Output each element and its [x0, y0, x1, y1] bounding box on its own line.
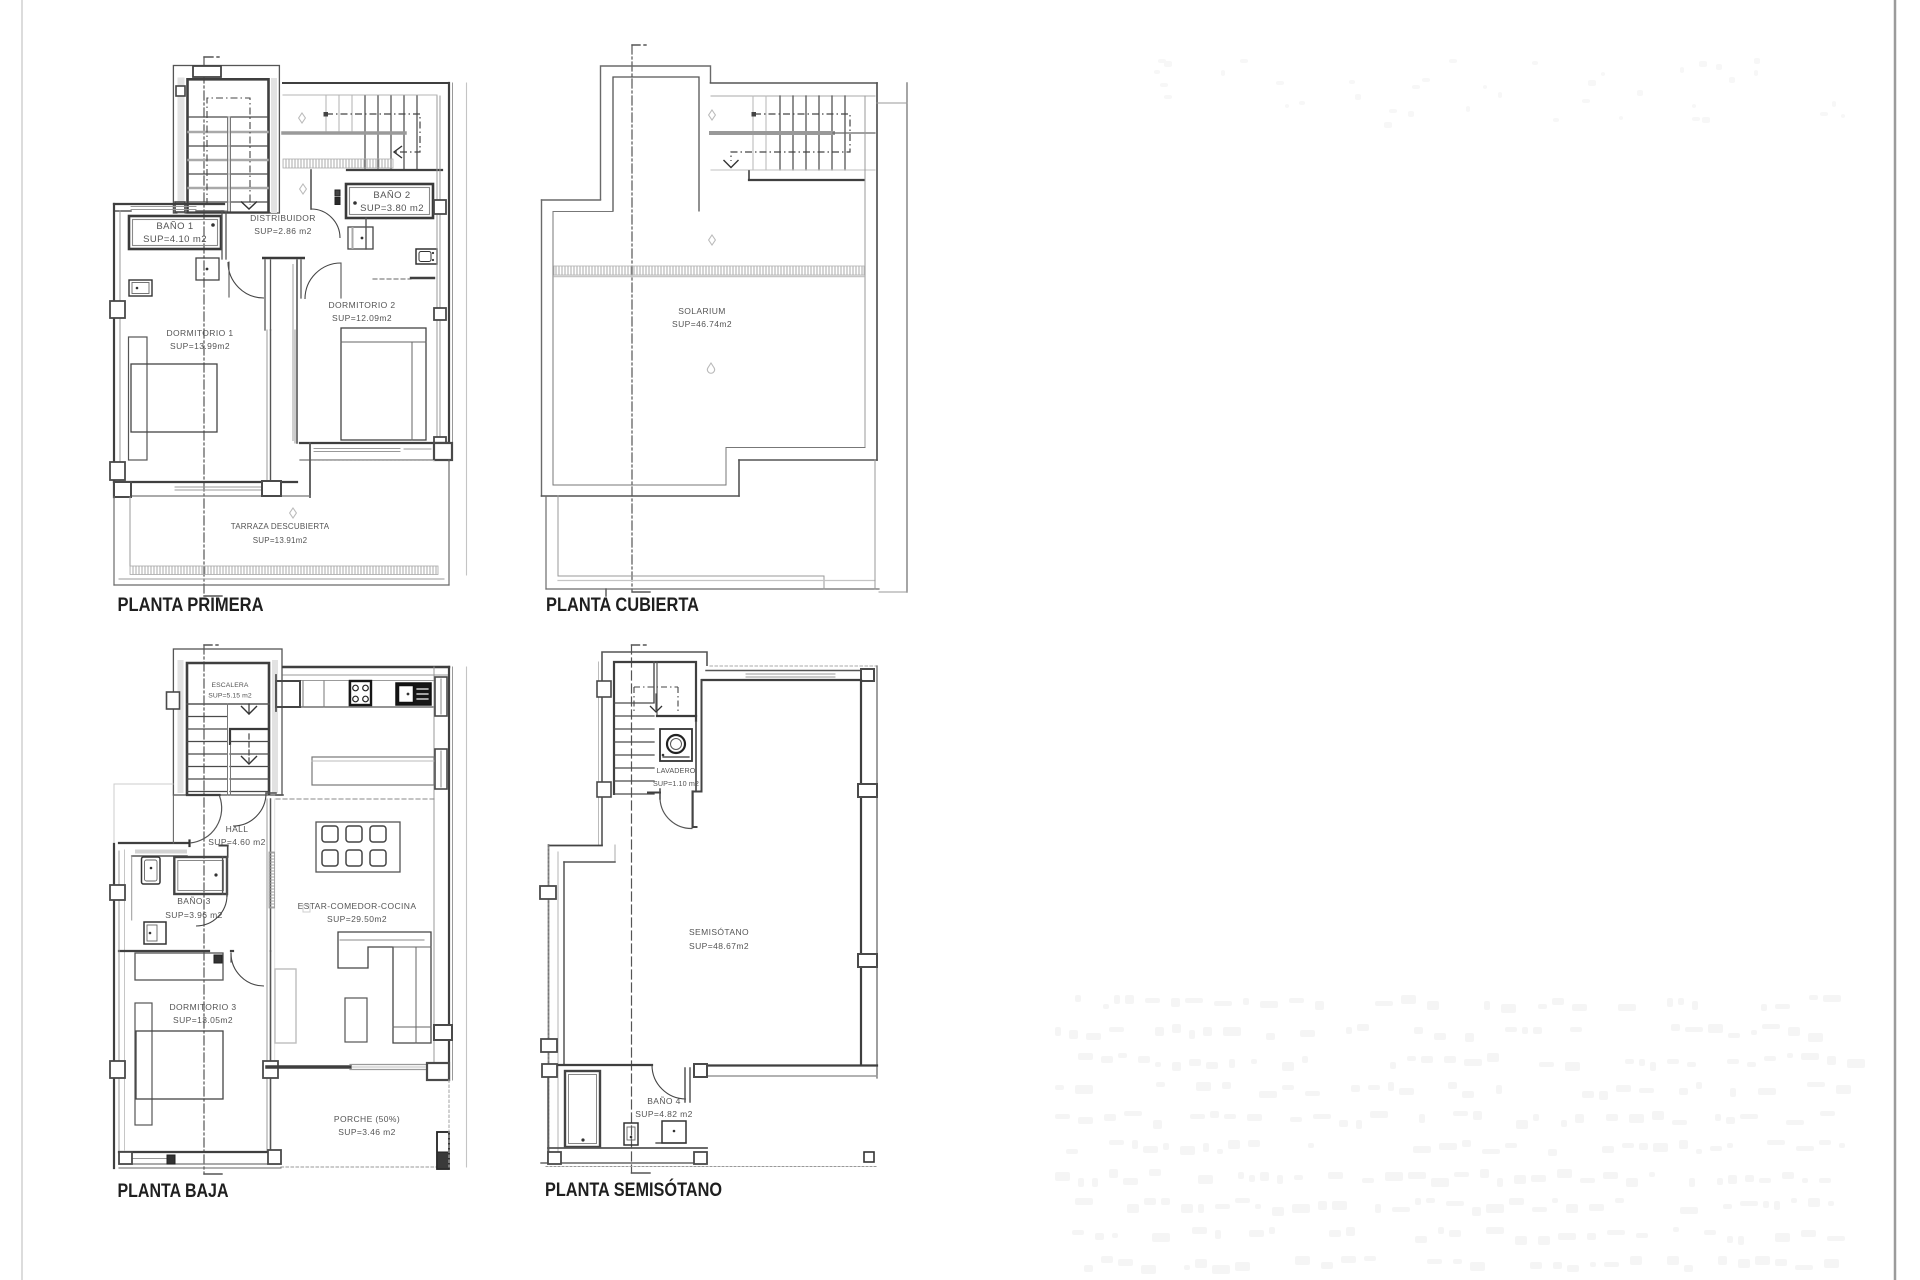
svg-text:ESCALERA: ESCALERA — [211, 682, 248, 689]
svg-text:ESTAR-COMEDOR-COCINA: ESTAR-COMEDOR-COCINA — [298, 901, 417, 911]
svg-text:SUP=13.91m2: SUP=13.91m2 — [253, 536, 308, 545]
svg-text:TARRAZA DESCUBIERTA: TARRAZA DESCUBIERTA — [231, 522, 330, 531]
svg-text:LAVADERO: LAVADERO — [657, 766, 696, 775]
svg-text:PLANTA SEMISÓTANO: PLANTA SEMISÓTANO — [545, 1179, 722, 1201]
svg-text:SUP=1.10 m2: SUP=1.10 m2 — [653, 779, 699, 788]
svg-text:SUP=13.99m2: SUP=13.99m2 — [170, 341, 230, 351]
svg-text:PLANTA BAJA: PLANTA BAJA — [118, 1181, 229, 1202]
svg-text:DORMITORIO 2: DORMITORIO 2 — [329, 300, 396, 310]
svg-text:SUP=4.82 m2: SUP=4.82 m2 — [635, 1109, 693, 1119]
svg-text:SUP=4.10 m2: SUP=4.10 m2 — [143, 234, 207, 245]
svg-text:DORMITORIO 1: DORMITORIO 1 — [167, 328, 234, 338]
svg-text:SUP=3.96 m2: SUP=3.96 m2 — [165, 910, 223, 920]
svg-text:SEMISÓTANO: SEMISÓTANO — [689, 927, 749, 937]
svg-text:SUP=46.74m2: SUP=46.74m2 — [672, 319, 732, 329]
svg-text:SUP=48.67m2: SUP=48.67m2 — [689, 941, 749, 951]
svg-text:PLANTA CUBIERTA: PLANTA CUBIERTA — [546, 595, 699, 616]
svg-text:PORCHE (50%): PORCHE (50%) — [334, 1114, 400, 1124]
svg-text:SUP=4.60 m2: SUP=4.60 m2 — [208, 837, 266, 847]
svg-text:BAÑO 2: BAÑO 2 — [373, 190, 410, 201]
svg-text:BAÑO 3: BAÑO 3 — [177, 896, 211, 906]
svg-text:SOLARIUM: SOLARIUM — [678, 306, 726, 316]
svg-text:PLANTA PRIMERA: PLANTA PRIMERA — [118, 595, 264, 616]
svg-text:SUP=2.86 m2: SUP=2.86 m2 — [254, 226, 312, 236]
svg-text:DISTRIBUIDOR: DISTRIBUIDOR — [250, 213, 316, 223]
svg-text:SUP=12.09m2: SUP=12.09m2 — [332, 313, 392, 323]
svg-text:SUP=13.05m2: SUP=13.05m2 — [173, 1015, 233, 1025]
svg-text:SUP=29.50m2: SUP=29.50m2 — [327, 914, 387, 924]
svg-text:BAÑO 4: BAÑO 4 — [647, 1096, 681, 1106]
svg-text:DORMITORIO 3: DORMITORIO 3 — [170, 1002, 237, 1012]
svg-text:SUP=5.15 m2: SUP=5.15 m2 — [208, 693, 252, 700]
svg-text:SUP=3.80 m2: SUP=3.80 m2 — [360, 203, 424, 214]
svg-text:BAÑO 1: BAÑO 1 — [156, 221, 193, 232]
svg-text:SUP=3.46 m2: SUP=3.46 m2 — [338, 1127, 396, 1137]
